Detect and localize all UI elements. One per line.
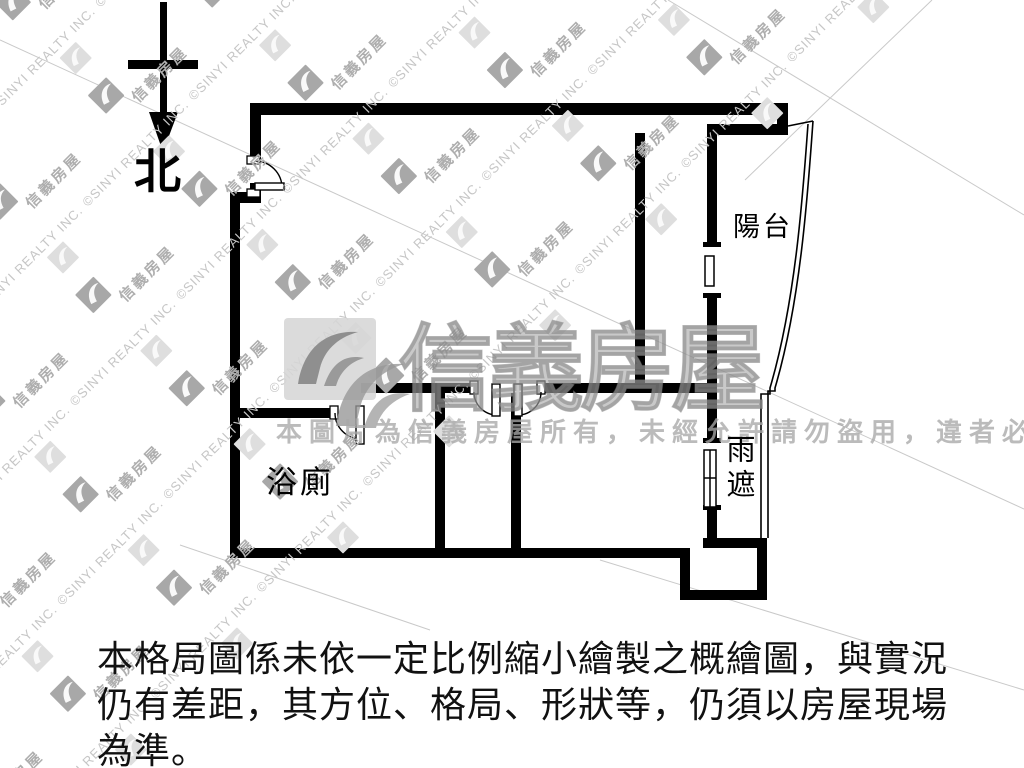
north-label: 北 (134, 150, 181, 197)
floor-plan-page: 信義房屋信義房屋信義房屋信義房屋信義房屋信義房屋信義房屋信義房屋信義房屋信義房屋… (0, 0, 1024, 768)
disclaimer-line-3: 為準。 (97, 728, 948, 768)
disclaimer-text: 本格局圖係未依一定比例縮小繪製之概繪圖，與實況 仍有差距，其方位、格局、形狀等，… (97, 636, 948, 768)
disclaimer-line-2: 仍有差距，其方位、格局、形狀等，仍須以房屋現場 (97, 682, 948, 728)
balcony-label: 陽台 (733, 214, 793, 241)
north-arrow (128, 2, 198, 152)
disclaimer-line-1: 本格局圖係未依一定比例縮小繪製之概繪圖，與實況 (97, 636, 948, 682)
bathroom-door (330, 406, 364, 444)
rain-shelter-label: 雨遮 (723, 434, 752, 504)
bedroom-door-left (470, 381, 500, 416)
bedroom-door-right (514, 381, 545, 416)
bathroom-label: 浴廁 (266, 467, 334, 498)
balcony-outline (761, 121, 813, 538)
walls (230, 103, 788, 600)
